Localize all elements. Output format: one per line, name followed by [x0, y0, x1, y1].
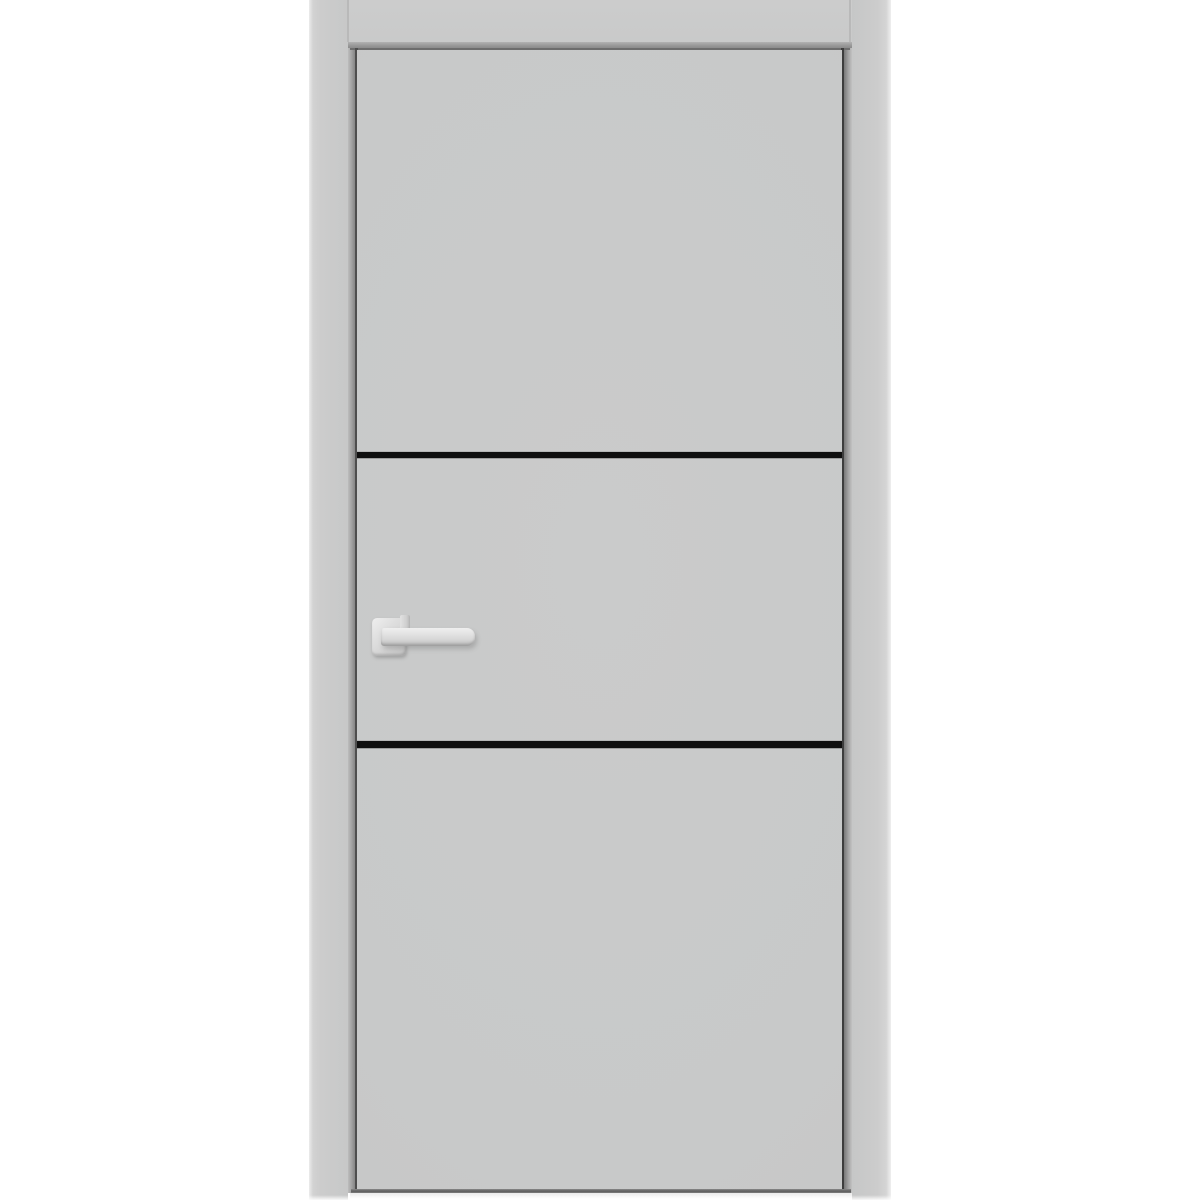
door-handle-lever	[381, 628, 475, 646]
bottom-fade	[309, 1195, 891, 1200]
product-photo-door	[0, 0, 1200, 1200]
black-inlay-stripe-top	[357, 452, 842, 458]
frame-joint-left	[347, 0, 349, 42]
door-frame-head	[309, 0, 891, 42]
frame-joint-right	[849, 0, 851, 42]
black-inlay-stripe-bottom	[357, 741, 842, 748]
door-frame-jamb-left	[309, 0, 348, 1200]
right-reveal-shadow	[844, 48, 852, 1193]
door-slab	[357, 50, 842, 1191]
door-frame-jamb-right	[852, 0, 891, 1200]
